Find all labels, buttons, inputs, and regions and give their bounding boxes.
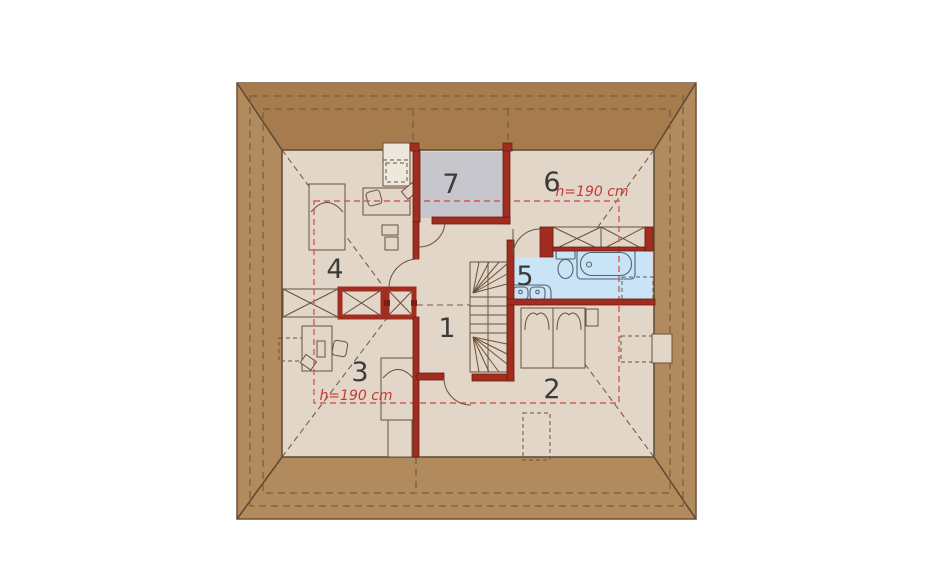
floor-plan-drawing: 1 2 3 4 5 6 7 h=190 cm h=190 cm: [0, 0, 940, 587]
wall-bathroom-bottom: [507, 299, 655, 305]
staircase: [470, 262, 507, 372]
wall-wardrobe-end-block: [645, 227, 653, 251]
wall-room7-bottom: [432, 217, 510, 224]
wall-bathroom-door-block: [540, 227, 553, 257]
chimney-block: [383, 143, 410, 186]
room-label-2: 2: [543, 374, 560, 405]
wall-knee-stub: [503, 143, 512, 151]
stool-room4: [385, 237, 398, 250]
dresser-room3: [388, 420, 412, 457]
room-label-5: 5: [516, 261, 533, 292]
wall-room7-left: [413, 150, 420, 222]
wall-knee-stub: [410, 143, 419, 151]
wall-stairs-right: [507, 240, 514, 381]
room-label-3: 3: [351, 357, 368, 388]
wardrobe-above-bath: [553, 227, 645, 250]
dormer-niche-room2: [652, 334, 672, 363]
chimney: [383, 143, 410, 186]
room-label-1: 1: [438, 313, 455, 344]
chair-room3: [332, 340, 348, 357]
room-5-bathroom-area: [513, 251, 652, 300]
nightstand-room2: [586, 309, 598, 326]
chair-room4: [365, 189, 382, 206]
wall-room3-right: [413, 317, 419, 457]
room-label-7: 7: [442, 169, 459, 200]
floor-plan-canvas: 1 2 3 4 5 6 7 h=190 cm h=190 cm: [0, 0, 940, 587]
room-label-4: 4: [326, 254, 343, 285]
height-annotation-top: h=190 cm: [555, 184, 628, 200]
closet-door-pivot: [411, 300, 417, 306]
room-7-wardrobe-area: [419, 152, 503, 218]
wall-room7-right: [503, 150, 510, 224]
closet-door-pivot: [384, 300, 390, 306]
wall-hall-bottom-stub: [417, 373, 444, 380]
side-table-room4: [382, 225, 398, 235]
height-annotation-bottom: h=190 cm: [319, 388, 392, 404]
wall-bathroom-top: [553, 247, 652, 251]
wall-hall-left-upper: [413, 222, 419, 259]
roof-top-slope: [237, 83, 696, 150]
